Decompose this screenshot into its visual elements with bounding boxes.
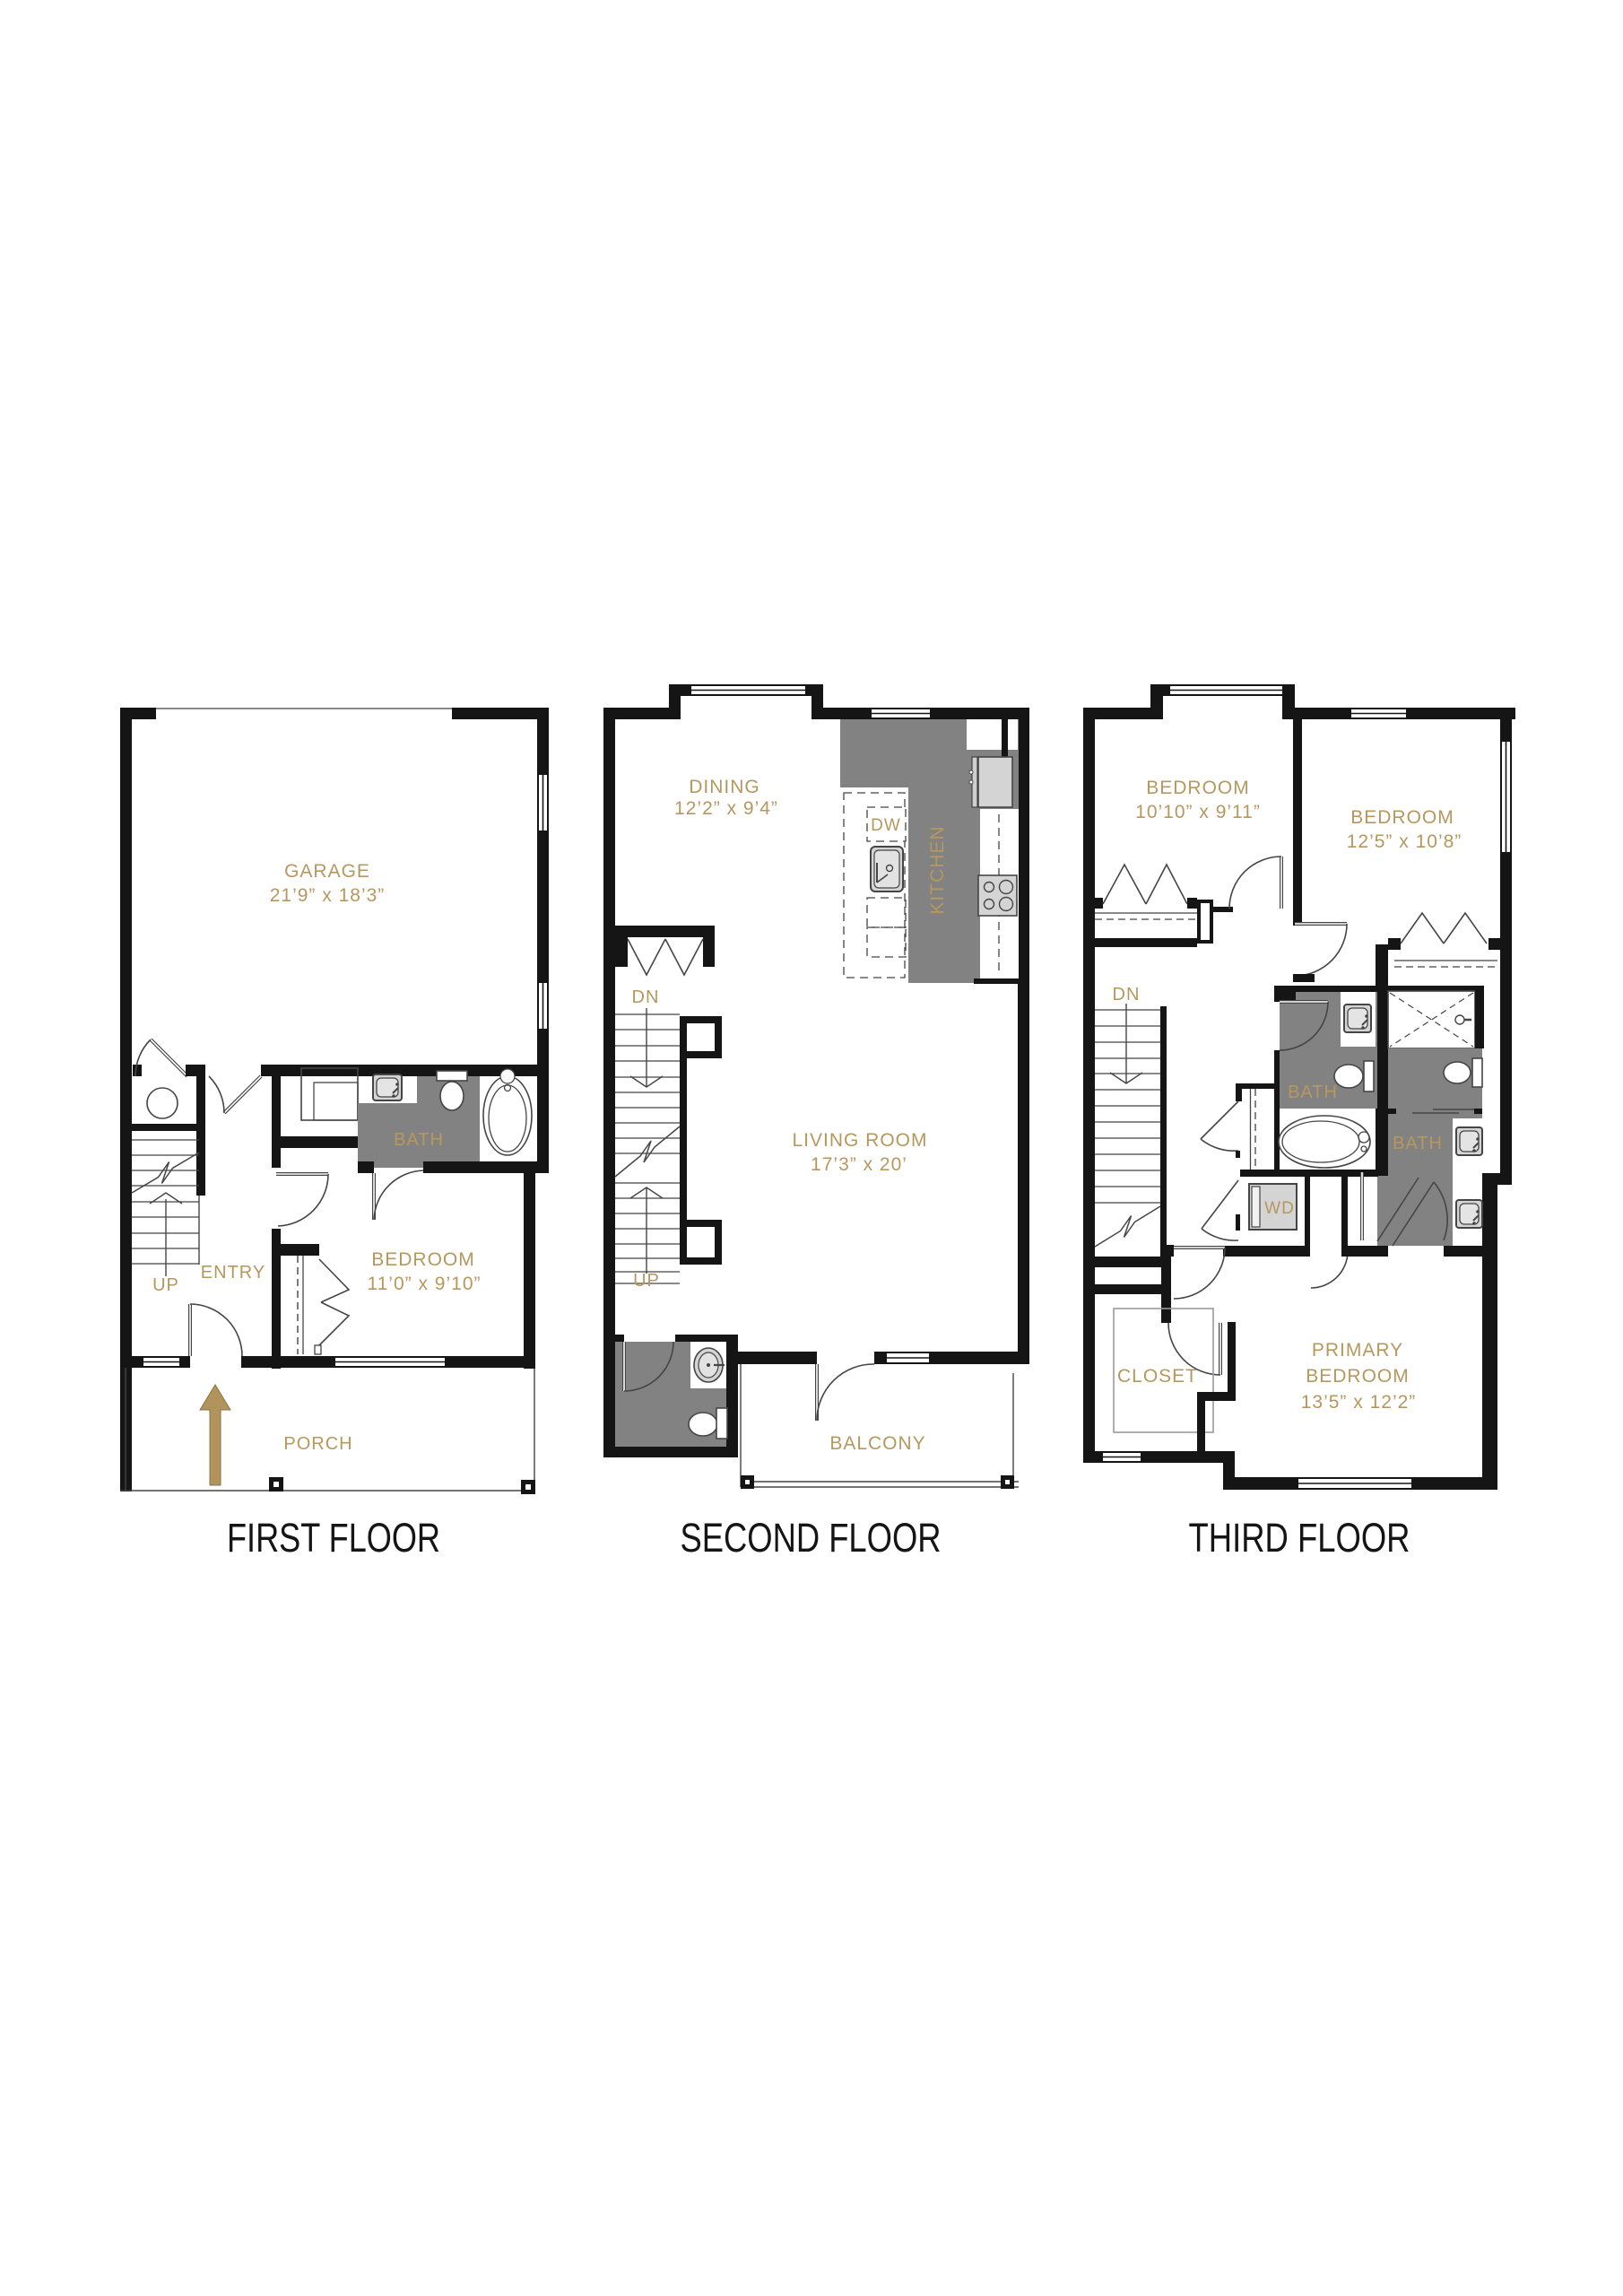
svg-text:KITCHEN: KITCHEN (927, 825, 948, 914)
svg-text:UP: UP (633, 1271, 660, 1291)
svg-text:DN: DN (1113, 985, 1141, 1004)
svg-text:UP: UP (152, 1275, 179, 1295)
svg-text:10’10” x 9’11”: 10’10” x 9’11” (1135, 802, 1261, 822)
svg-text:17’3” x 20’: 17’3” x 20’ (811, 1154, 907, 1175)
svg-text:11’0” x 9’10”: 11’0” x 9’10” (367, 1274, 481, 1294)
svg-text:CLOSET: CLOSET (1117, 1366, 1198, 1387)
svg-text:SECOND FLOOR: SECOND FLOOR (681, 1515, 942, 1561)
svg-text:WD: WD (1264, 1199, 1295, 1218)
svg-text:12’5” x 10’8”: 12’5” x 10’8” (1347, 831, 1462, 852)
svg-text:21’9” x 18’3”: 21’9” x 18’3” (270, 885, 386, 906)
svg-text:LIVING ROOM: LIVING ROOM (792, 1130, 927, 1151)
svg-text:BEDROOM: BEDROOM (1306, 1366, 1410, 1387)
svg-text:13’5” x 12’2”: 13’5” x 12’2” (1301, 1392, 1417, 1413)
svg-text:PORCH: PORCH (283, 1434, 352, 1454)
svg-text:BALCONY: BALCONY (829, 1433, 925, 1454)
svg-text:DINING: DINING (689, 777, 760, 797)
svg-text:DW: DW (871, 816, 901, 835)
svg-text:PRIMARY: PRIMARY (1312, 1340, 1403, 1361)
svg-text:12’2” x 9’4”: 12’2” x 9’4” (674, 798, 778, 819)
svg-text:GARAGE: GARAGE (284, 861, 370, 882)
svg-text:BATH: BATH (394, 1130, 444, 1150)
svg-text:BATH: BATH (1288, 1083, 1338, 1102)
svg-text:ENTRY: ENTRY (201, 1263, 265, 1283)
svg-text:BEDROOM: BEDROOM (1146, 778, 1250, 798)
svg-text:THIRD FLOOR: THIRD FLOOR (1189, 1515, 1410, 1561)
svg-text:BATH: BATH (1393, 1134, 1443, 1153)
svg-text:FIRST FLOOR: FIRST FLOOR (227, 1515, 440, 1561)
svg-text:BEDROOM: BEDROOM (1350, 807, 1454, 828)
svg-text:DN: DN (632, 987, 660, 1007)
svg-text:BEDROOM: BEDROOM (371, 1249, 475, 1270)
